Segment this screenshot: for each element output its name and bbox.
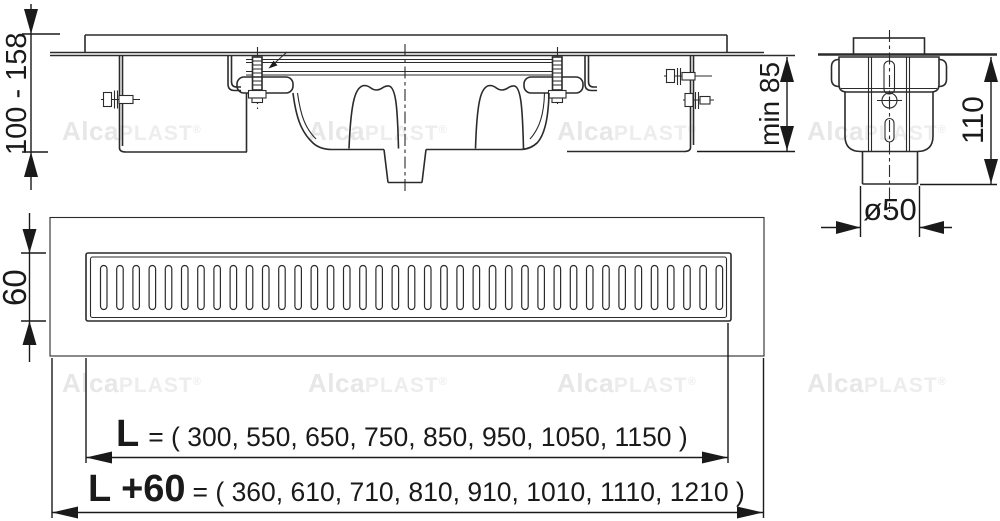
length-l-text: L= ( 300, 550, 650, 750, 850, 950, 1050,… [116, 413, 688, 455]
watermark-text: AlcaPLAST® [557, 116, 696, 146]
channel-body-outline [50, 218, 764, 357]
watermark-text: AlcaPLAST® [557, 368, 696, 398]
anchor-bolt-icon [664, 68, 712, 85]
outlet-diameter-label: ø50 [863, 192, 916, 227]
channel-width-label: 60 [0, 269, 33, 306]
anchor-bolt-icon [683, 92, 714, 109]
length-dimensions: L= ( 300, 550, 650, 750, 850, 950, 1050,… [52, 323, 764, 519]
technical-drawing-page: AlcaPLAST® AlcaPLAST® AlcaPLAST® AlcaPLA… [0, 0, 1000, 521]
dimension-length-l-plus-60: L +60= ( 360, 610, 710, 810, 910, 1010, … [52, 468, 763, 519]
install-height-label: 100 - 158 [1, 32, 33, 155]
top-plan-view: 60 [0, 213, 764, 362]
watermark-text: AlcaPLAST® [308, 368, 447, 398]
watermark-text: AlcaPLAST® [62, 116, 201, 146]
watermark-text: AlcaPLAST® [807, 368, 946, 398]
drain-channel-drawing: AlcaPLAST® AlcaPLAST® AlcaPLAST® AlcaPLA… [0, 0, 1000, 521]
dimension-min-depth: min 85 [697, 57, 795, 152]
watermark-text: AlcaPLAST® [308, 116, 447, 146]
dimension-channel-width: 60 [0, 213, 46, 362]
grate-slots [101, 266, 723, 310]
dimension-length-l: L= ( 300, 550, 650, 750, 850, 950, 1050,… [86, 413, 728, 464]
length-l-plus-60-text: L +60= ( 360, 610, 710, 810, 910, 1010, … [88, 468, 745, 510]
side-section-view: 100 - 158 min 85 [1, 4, 795, 192]
watermark-text: AlcaPLAST® [807, 116, 946, 146]
dimension-install-height: 100 - 158 [1, 4, 60, 190]
min-depth-label: min 85 [754, 62, 785, 146]
dimension-body-height: 110 [920, 57, 998, 185]
watermark-text: AlcaPLAST® [62, 368, 201, 398]
anchor-bolt-icon [101, 91, 140, 109]
body-height-label: 110 [957, 96, 990, 144]
dimension-outlet-diameter: ø50 [821, 186, 952, 237]
